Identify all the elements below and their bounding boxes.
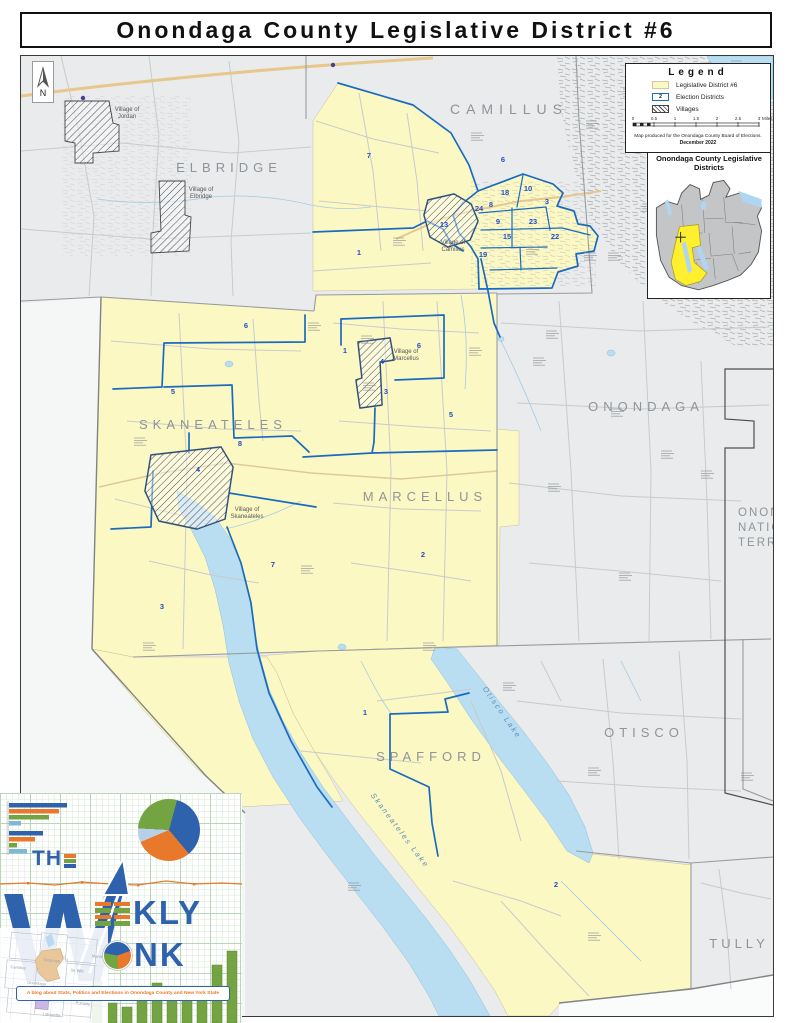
map-credit: Map produced for the Onondaga County Boa…	[630, 134, 766, 148]
map-title-bar: Onondaga County Legislative District #6	[20, 12, 772, 48]
legend: Legend Legislative District #6 2 Electio…	[625, 63, 771, 153]
inset-county-map: Onondaga County Legislative Districts	[647, 152, 771, 299]
town-label-tully: TULLY	[709, 936, 769, 951]
scale-tick: 2.5	[735, 116, 741, 121]
election-district-number: 1	[343, 346, 347, 355]
mini-bar	[9, 831, 43, 836]
election-district-number: 3	[545, 197, 549, 206]
village-label-camillus: Village ofCamillus	[441, 240, 466, 253]
election-district-number: 10	[524, 184, 532, 193]
weekly-wonk-logo: CamillusSyracuseDe WittManliusOnondagaLa…	[0, 793, 242, 1023]
mini-bar	[9, 815, 49, 820]
election-district-number: 7	[367, 151, 371, 160]
mini-bar	[9, 837, 35, 842]
mini-bar	[9, 809, 59, 814]
logo-the-e	[64, 854, 76, 868]
legend-item-villages: Villages	[652, 104, 766, 114]
election-district-number: 8	[238, 439, 242, 448]
logo-tagline: A blog about Stats, Politics and Electio…	[27, 991, 219, 996]
scale-tick: 2	[716, 116, 719, 121]
scale-tick: 0.5	[651, 116, 657, 121]
scale-bar: 00.511.522.53Miles	[630, 116, 766, 134]
legend-item-election-districts: 2 Election Districts	[652, 92, 766, 102]
election-district-number: 8	[489, 200, 493, 209]
election-district-number: 5	[171, 387, 175, 396]
election-district-number: 19	[479, 250, 487, 259]
election-district-number: 7	[271, 560, 275, 569]
logo-the: TH	[32, 850, 76, 868]
town-label-marcellus: MARCELLUS	[363, 489, 487, 504]
town-label-spafford: SPAFFORD	[376, 749, 486, 764]
district-swatch	[652, 81, 669, 89]
interstate-shield-icon	[81, 96, 85, 100]
legend-title: Legend	[630, 67, 766, 78]
minimap-syracuse	[33, 946, 64, 982]
scale-tick: 3	[758, 116, 761, 121]
north-arrow-icon	[36, 66, 50, 90]
village-label-elbridge: Village ofElbridge	[189, 187, 214, 200]
map-document: Onondaga County Legislative District #6	[0, 0, 791, 1023]
inset-map-graphic	[650, 172, 768, 294]
election-district-number: 6	[417, 341, 421, 350]
village-label-skaneateles: Village ofSkaneateles	[230, 507, 263, 520]
election-district-number: 15	[503, 232, 511, 241]
minimap-town-label: Camillus	[10, 964, 26, 970]
town-label-onondaga: ONONDAGA	[588, 399, 704, 414]
north-arrow: N	[32, 61, 54, 103]
interstate-shield-icon	[331, 63, 335, 67]
town-label-camillus: CAMILLUS	[450, 101, 568, 117]
election-district-number: 18	[501, 188, 509, 197]
town-label-skaneateles: SKANEATELES	[139, 417, 287, 432]
election-district-swatch: 2	[652, 93, 669, 101]
territory-label-line: NATION	[738, 522, 773, 534]
logo-minimap: CamillusSyracuseDe WittManliusOnondagaLa…	[0, 928, 108, 1023]
logo-eekly: KLY	[95, 899, 202, 927]
inset-title: Onondaga County Legislative Districts	[650, 155, 768, 172]
mini-bar	[9, 821, 21, 826]
election-district-number: 6	[244, 321, 248, 330]
election-district-number: 1	[357, 248, 361, 257]
mini-bar	[9, 803, 67, 808]
election-district-number: 13	[440, 220, 448, 229]
territory-label-line: ONONDAGA	[738, 507, 773, 519]
village-label-marcellus: Village ofMarcellus	[393, 349, 419, 362]
election-district-number: 22	[551, 232, 559, 241]
logo-onk: NK	[103, 941, 186, 970]
election-district-number: 1	[363, 708, 367, 717]
nation-territory-label: ONONDAGANATIONTERRITORY	[738, 507, 773, 549]
mini-bar	[9, 843, 17, 848]
minimap-town-label: De Witt	[70, 967, 84, 973]
green-bar	[122, 1007, 132, 1023]
territory-label-line: TERRITORY	[738, 537, 773, 549]
election-district-number: 2	[421, 550, 425, 559]
village-label-jordan: Village ofJordan	[115, 107, 140, 120]
election-district-number: 5	[449, 410, 453, 419]
scale-tick: 1	[674, 116, 677, 121]
scale-unit: Miles	[762, 116, 773, 121]
minimap-lake	[44, 933, 55, 948]
village-skaneateles	[145, 447, 233, 529]
election-district-number: 3	[160, 602, 164, 611]
election-district-number: 3	[384, 387, 388, 396]
scale-tick: 1.5	[693, 116, 699, 121]
logo-tagline-banner: A blog about Stats, Politics and Electio…	[16, 986, 230, 1001]
town-label-elbridge: ELBRIDGE	[176, 160, 282, 175]
scale-tick: 0	[632, 116, 635, 121]
legend-item-district: Legislative District #6	[652, 80, 766, 90]
election-district-number: 24	[475, 204, 484, 213]
election-district-number: 23	[529, 217, 537, 226]
page-title: Onondaga County Legislative District #6	[116, 17, 675, 44]
election-district-number: 2	[554, 880, 558, 889]
village-swatch	[652, 105, 669, 113]
town-label-otisco: OTISCO	[604, 725, 684, 740]
minimap-town-label: LaFayette	[42, 1011, 61, 1018]
logo-o-pie-icon	[103, 941, 132, 970]
election-district-number: 6	[501, 155, 505, 164]
election-district-number: 9	[496, 217, 500, 226]
